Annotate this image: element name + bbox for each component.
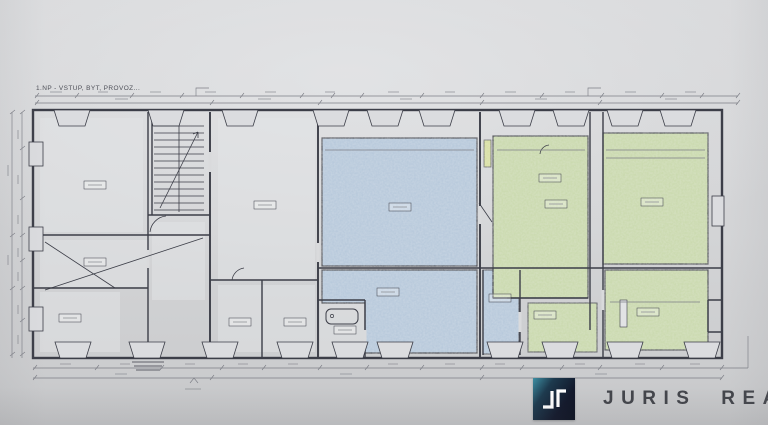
brand-name: JURIS REAL xyxy=(603,388,768,411)
blue-main-hall xyxy=(322,138,477,266)
green-left-unit xyxy=(493,136,588,298)
floor-plan-drawing xyxy=(0,0,768,425)
bottom-windows xyxy=(55,342,720,370)
plan-title: 1.NP - VSTUP, BYT, PROVOZ... xyxy=(36,85,216,92)
floorplan-photo: 1.NP - VSTUP, BYT, PROVOZ... JURIS REAL xyxy=(0,0,768,425)
top-windows xyxy=(54,110,696,126)
staircase xyxy=(154,126,204,212)
yellow-door-strip xyxy=(484,140,491,167)
logo-monogram xyxy=(533,378,575,420)
brand-footer: JURIS REAL xyxy=(533,378,768,420)
highlight-layer xyxy=(322,133,708,354)
juris-real-logo-icon xyxy=(533,378,575,420)
